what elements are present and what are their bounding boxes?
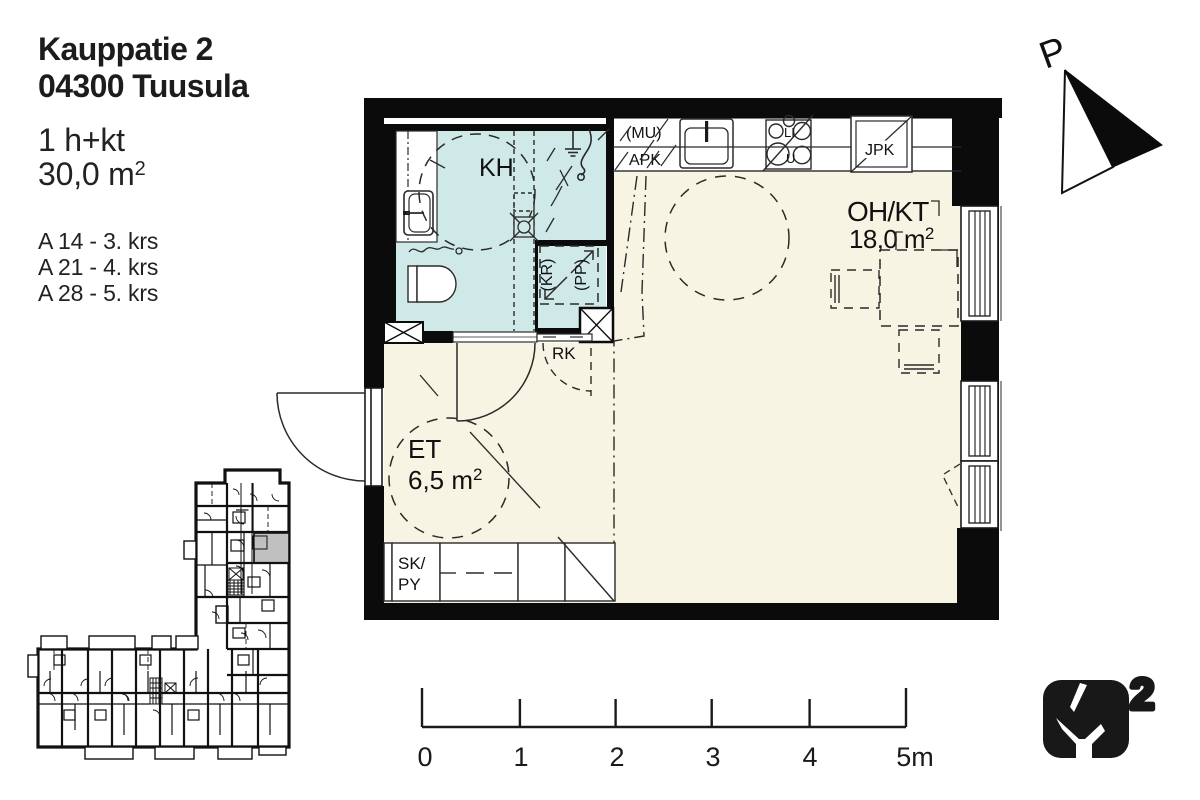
svg-text:LI: LI: [784, 125, 795, 140]
svg-text:2: 2: [609, 742, 624, 772]
svg-text:A 28 - 5. krs: A 28 - 5. krs: [38, 280, 158, 306]
svg-text:KH: KH: [479, 154, 514, 182]
svg-text:4: 4: [802, 742, 817, 772]
svg-text:30,0 m2: 30,0 m2: [38, 156, 146, 192]
svg-text:(MU): (MU): [626, 125, 662, 142]
svg-text:6,5 m2: 6,5 m2: [408, 465, 483, 495]
svg-text:A 14 - 3. krs: A 14 - 3. krs: [38, 228, 158, 254]
svg-text:2: 2: [1130, 670, 1154, 719]
svg-text:ET: ET: [408, 434, 441, 464]
svg-text:(KR): (KR): [539, 259, 556, 292]
svg-text:OH/KT: OH/KT: [847, 196, 929, 227]
svg-text:SK/: SK/: [398, 554, 426, 573]
svg-text:U: U: [786, 151, 795, 166]
svg-text:0: 0: [417, 742, 432, 772]
svg-text:04300 Tuusula: 04300 Tuusula: [38, 68, 249, 104]
svg-text:PY: PY: [398, 575, 421, 594]
svg-text:Kauppatie 2: Kauppatie 2: [38, 31, 213, 67]
svg-text:(PP): (PP): [573, 259, 590, 291]
svg-text:RK: RK: [552, 344, 576, 363]
svg-text:1 h+kt: 1 h+kt: [38, 122, 125, 158]
svg-text:1: 1: [513, 742, 528, 772]
svg-text:JPK: JPK: [865, 142, 895, 159]
svg-text:3: 3: [705, 742, 720, 772]
svg-text:5m: 5m: [896, 742, 934, 772]
svg-text:A 21 - 4. krs: A 21 - 4. krs: [38, 254, 158, 280]
